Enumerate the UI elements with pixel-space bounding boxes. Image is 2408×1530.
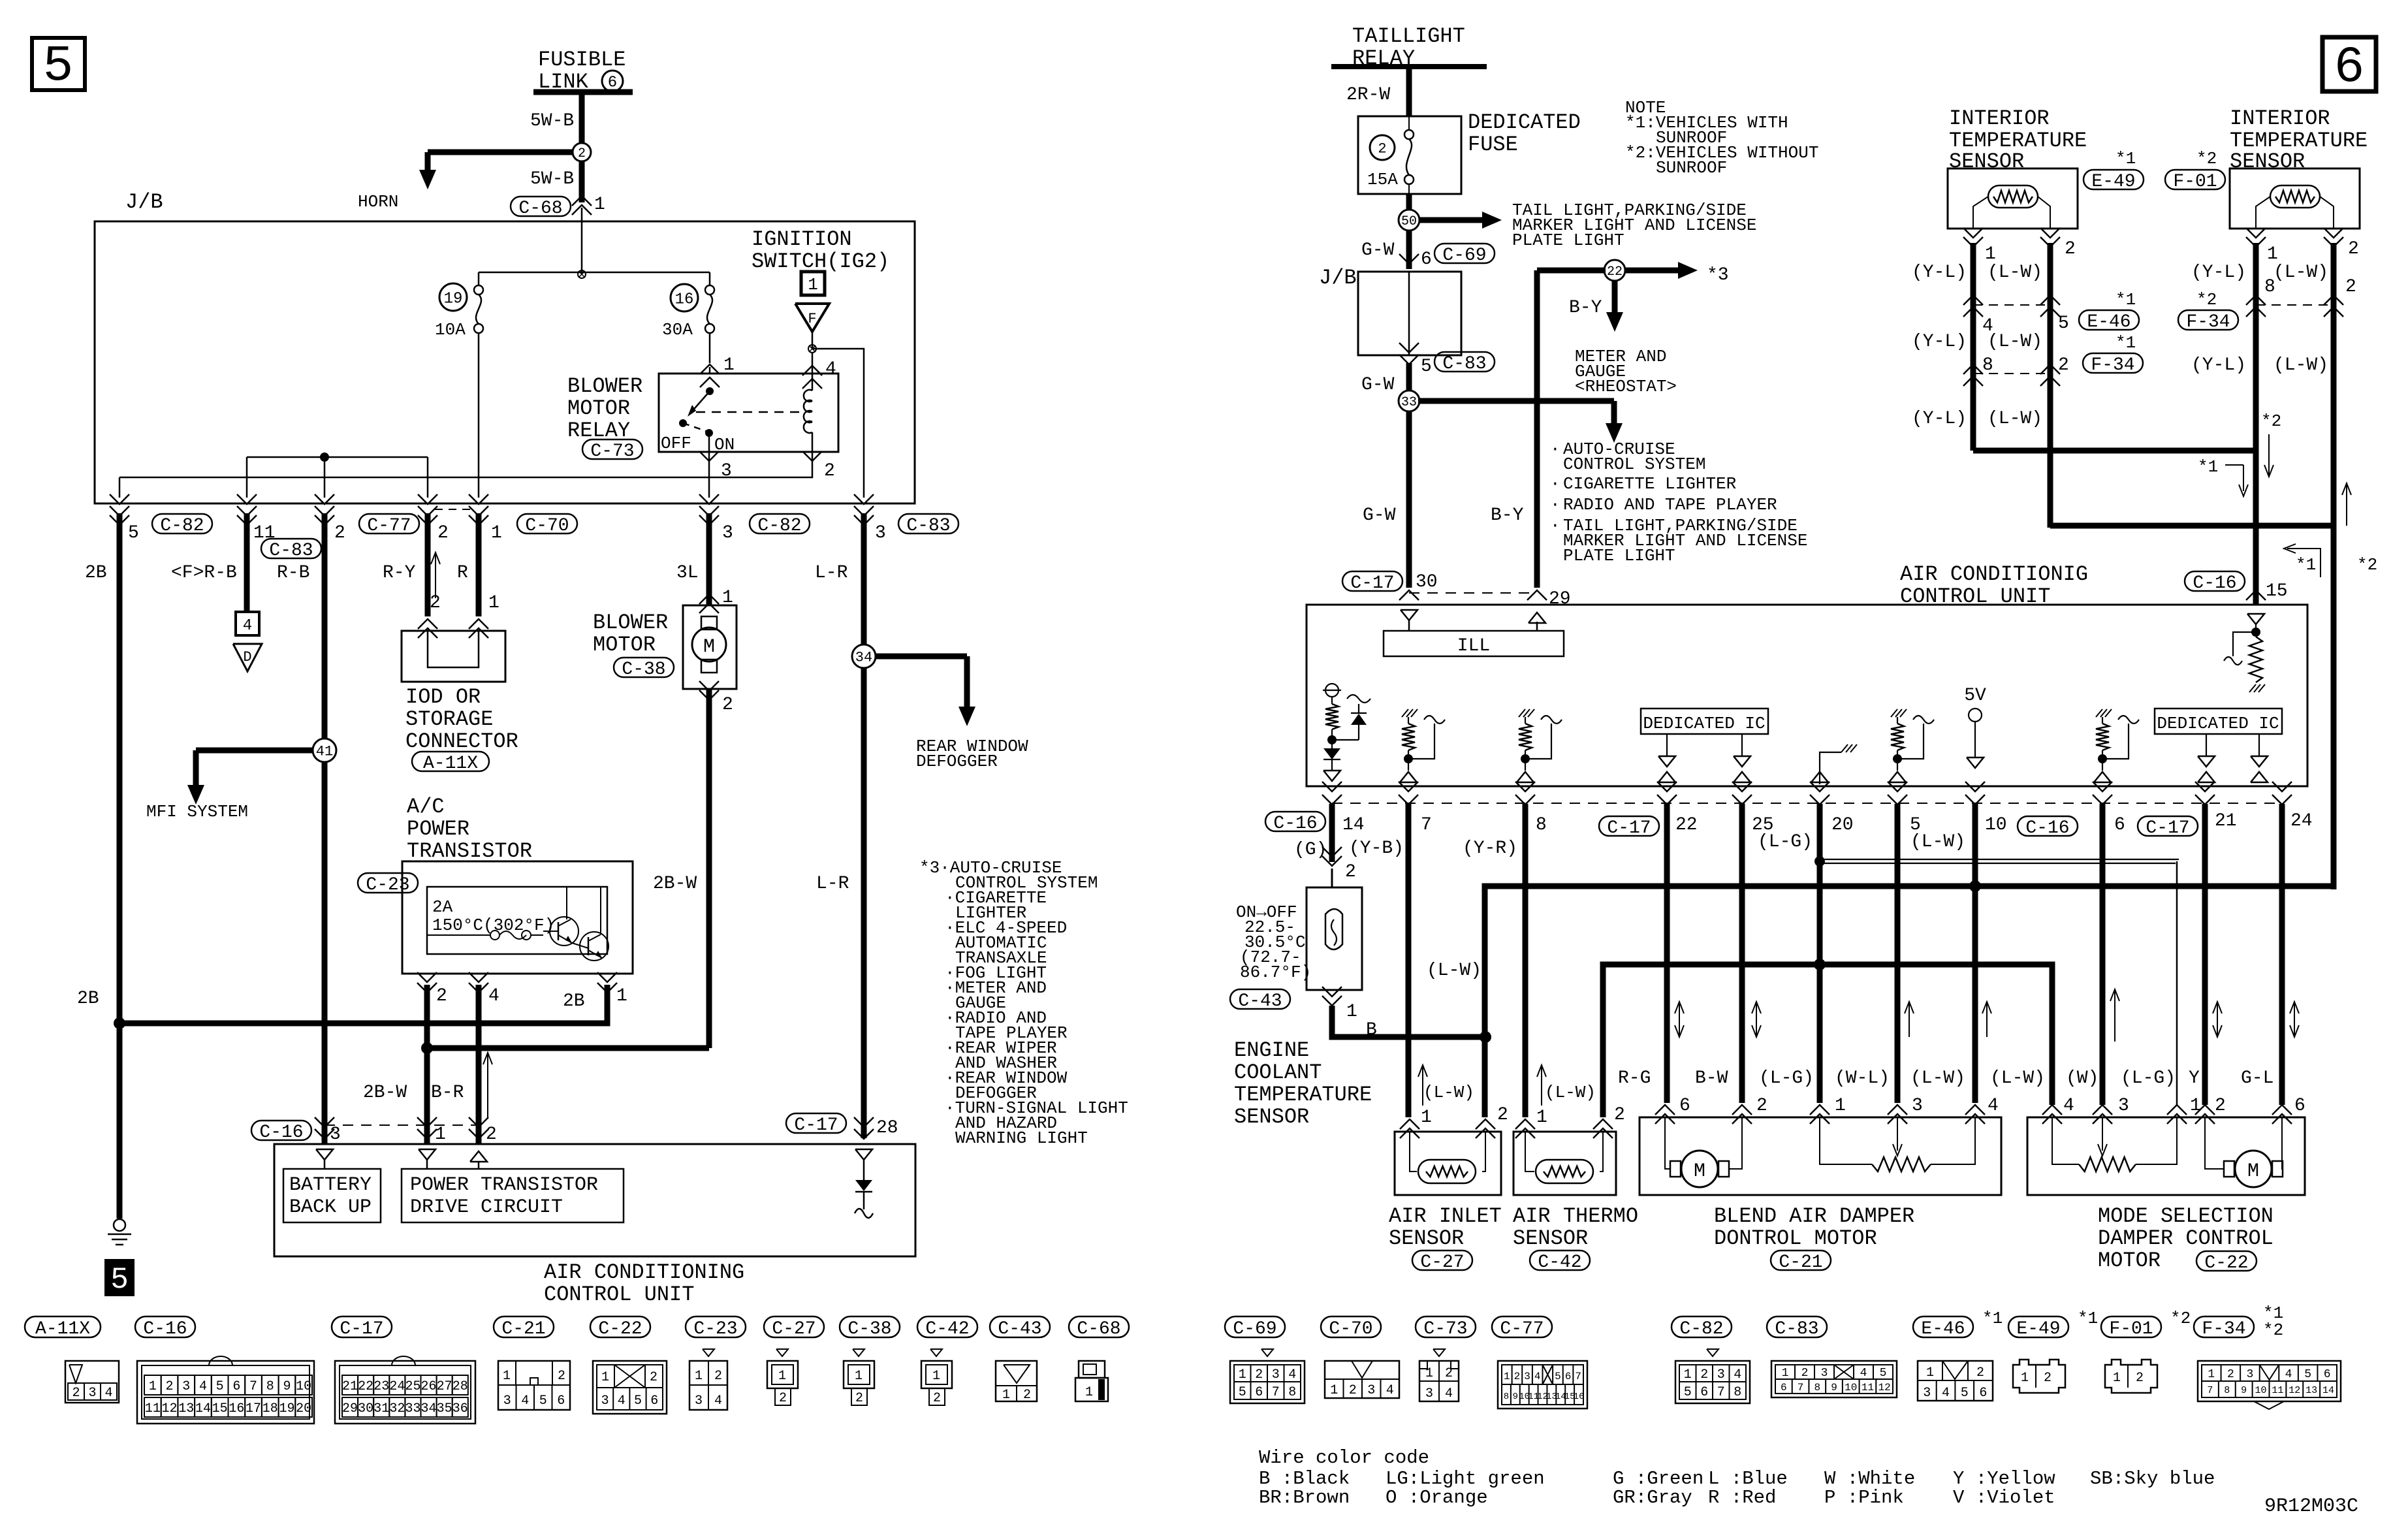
svg-text:MFI SYSTEM: MFI SYSTEM xyxy=(146,802,248,821)
svg-text:9: 9 xyxy=(1513,1392,1518,1402)
svg-text:4: 4 xyxy=(2063,1096,2074,1116)
svg-text:4: 4 xyxy=(1534,1371,1541,1382)
svg-text:P :Pink: P :Pink xyxy=(1824,1487,1904,1508)
svg-text:5: 5 xyxy=(43,38,74,95)
svg-text:36: 36 xyxy=(452,1401,468,1416)
svg-text:9: 9 xyxy=(2241,1385,2247,1396)
svg-text:IGNITION: IGNITION xyxy=(752,227,852,251)
svg-text:AIR THERMO: AIR THERMO xyxy=(1513,1204,1638,1228)
svg-text:2A: 2A xyxy=(432,897,453,917)
svg-text:CONTROL SYSTEM: CONTROL SYSTEM xyxy=(1563,454,1705,474)
svg-text:2: 2 xyxy=(1756,1096,1767,1116)
svg-text:B-W: B-W xyxy=(1695,1068,1728,1089)
svg-text:(Y-L): (Y-L) xyxy=(2191,263,2246,283)
svg-text:C-43: C-43 xyxy=(1238,991,1282,1012)
svg-text:C-70: C-70 xyxy=(525,516,569,536)
svg-text:R-B: R-B xyxy=(277,563,309,583)
svg-text:E-46: E-46 xyxy=(2087,312,2131,332)
svg-text:4: 4 xyxy=(714,1394,722,1409)
svg-text:R: R xyxy=(457,563,468,583)
svg-text:34: 34 xyxy=(855,650,872,666)
svg-text:2: 2 xyxy=(2065,239,2076,259)
svg-text:1: 1 xyxy=(616,986,627,1006)
svg-text:3: 3 xyxy=(2247,1368,2254,1381)
svg-text:C-82: C-82 xyxy=(757,516,801,536)
svg-text:<F>R-B: <F>R-B xyxy=(171,563,237,583)
svg-text:9R12M03C: 9R12M03C xyxy=(2264,1495,2358,1518)
svg-text:C-42: C-42 xyxy=(925,1319,969,1339)
svg-text:5: 5 xyxy=(110,1263,129,1297)
svg-text:15: 15 xyxy=(2266,581,2288,601)
svg-text:8: 8 xyxy=(1814,1382,1820,1394)
svg-text:1: 1 xyxy=(1782,1367,1789,1380)
svg-text:1: 1 xyxy=(1926,1365,1934,1380)
svg-text:23: 23 xyxy=(373,1379,389,1394)
svg-text:C-73: C-73 xyxy=(1423,1319,1467,1339)
svg-text:4: 4 xyxy=(1942,1386,1950,1401)
svg-text:2: 2 xyxy=(779,1391,787,1406)
svg-text:1: 1 xyxy=(1085,1385,1093,1400)
svg-text:16: 16 xyxy=(1574,1392,1585,1402)
svg-text:1: 1 xyxy=(2113,1371,2121,1386)
svg-text:2: 2 xyxy=(1976,1365,1984,1380)
svg-text:34: 34 xyxy=(421,1401,437,1416)
svg-text:L-R: L-R xyxy=(816,874,849,894)
svg-text:2: 2 xyxy=(2058,355,2069,375)
svg-text:AIR CONDITIONING: AIR CONDITIONING xyxy=(544,1260,744,1284)
svg-text:C-38: C-38 xyxy=(848,1319,891,1339)
svg-text:J/B: J/B xyxy=(125,190,163,214)
svg-text:22: 22 xyxy=(1675,815,1698,835)
svg-text:<RHEOSTAT>: <RHEOSTAT> xyxy=(1575,377,1677,396)
svg-text:13: 13 xyxy=(178,1401,194,1416)
svg-text:E-49: E-49 xyxy=(2091,172,2135,192)
svg-text:SUNROOF: SUNROOF xyxy=(1656,158,1727,178)
svg-text:G-W: G-W xyxy=(1363,505,1396,526)
svg-text:BACK UP: BACK UP xyxy=(289,1196,372,1219)
svg-text:C-21: C-21 xyxy=(501,1319,545,1339)
svg-text:1: 1 xyxy=(491,523,502,543)
svg-text:A-11X: A-11X xyxy=(423,754,478,774)
svg-text:9: 9 xyxy=(283,1379,291,1394)
svg-text:7: 7 xyxy=(2207,1385,2213,1396)
svg-text:22: 22 xyxy=(358,1379,373,1394)
svg-text:*3: *3 xyxy=(1707,265,1729,285)
svg-text:3: 3 xyxy=(88,1386,96,1401)
svg-text:3: 3 xyxy=(1717,1367,1725,1382)
svg-text:C-17: C-17 xyxy=(1350,573,1394,594)
svg-text:STORAGE: STORAGE xyxy=(405,707,493,731)
svg-text:G-W: G-W xyxy=(1361,240,1395,261)
svg-text:8: 8 xyxy=(266,1379,274,1394)
svg-text:2: 2 xyxy=(430,593,441,613)
svg-text:1: 1 xyxy=(778,1369,786,1384)
svg-text:1: 1 xyxy=(149,1379,157,1394)
svg-text:C-69: C-69 xyxy=(1442,246,1486,266)
svg-text:12: 12 xyxy=(162,1401,178,1416)
svg-text:C-16: C-16 xyxy=(2025,818,2069,838)
svg-text:C-82: C-82 xyxy=(160,516,204,536)
svg-text:PLATE LIGHT: PLATE LIGHT xyxy=(1512,231,1624,250)
svg-text:4: 4 xyxy=(1860,1367,1867,1380)
svg-text:2: 2 xyxy=(1023,1388,1031,1403)
svg-text:FUSIBLE: FUSIBLE xyxy=(538,48,626,72)
svg-text:2: 2 xyxy=(1801,1367,1809,1380)
svg-text:2: 2 xyxy=(2345,277,2356,297)
svg-text:*1: *1 xyxy=(2078,1309,2098,1328)
svg-text:(L-G): (L-G) xyxy=(1758,832,1813,852)
svg-text:6: 6 xyxy=(1565,1371,1572,1382)
svg-text:5: 5 xyxy=(1421,357,1432,377)
svg-text:8: 8 xyxy=(1734,1385,1741,1400)
svg-text:4: 4 xyxy=(1288,1367,1296,1382)
svg-text:2: 2 xyxy=(1614,1105,1625,1125)
svg-text:IOD OR: IOD OR xyxy=(405,685,481,709)
svg-text:7: 7 xyxy=(1272,1385,1280,1400)
svg-text:21: 21 xyxy=(2215,811,2237,831)
svg-text:6: 6 xyxy=(2294,1096,2305,1116)
svg-text:·: · xyxy=(1550,516,1560,535)
svg-text:22: 22 xyxy=(1607,264,1623,279)
svg-text:4: 4 xyxy=(1445,1386,1453,1401)
svg-text:F-01: F-01 xyxy=(2109,1319,2153,1339)
svg-text:5: 5 xyxy=(1880,1367,1887,1380)
svg-text:1: 1 xyxy=(808,275,818,295)
svg-text:3: 3 xyxy=(330,1124,341,1145)
svg-text:1: 1 xyxy=(1504,1371,1510,1382)
svg-text:2: 2 xyxy=(2136,1371,2144,1386)
svg-text:3: 3 xyxy=(1923,1386,1931,1401)
svg-text:19: 19 xyxy=(444,290,463,308)
svg-text:30A: 30A xyxy=(662,320,693,340)
svg-text:CIGARETTE LIGHTER: CIGARETTE LIGHTER xyxy=(1563,474,1736,494)
svg-text:DRIVE CIRCUIT: DRIVE CIRCUIT xyxy=(410,1196,563,1219)
svg-text:6: 6 xyxy=(1700,1385,1708,1400)
svg-text:1: 1 xyxy=(601,1370,609,1385)
svg-text:BLOWER: BLOWER xyxy=(593,611,668,635)
svg-text:(W-L): (W-L) xyxy=(1835,1068,1890,1089)
svg-text:(Y-L): (Y-L) xyxy=(2191,355,2246,375)
svg-text:6: 6 xyxy=(2324,1368,2331,1381)
svg-text:*2: *2 xyxy=(2196,290,2217,310)
svg-text:7: 7 xyxy=(1798,1382,1804,1394)
svg-text:6: 6 xyxy=(232,1379,240,1394)
svg-text:13: 13 xyxy=(2305,1385,2317,1396)
svg-text:4: 4 xyxy=(1386,1383,1394,1398)
svg-text:2: 2 xyxy=(436,986,447,1006)
svg-text:1: 1 xyxy=(695,1369,703,1384)
svg-text:33: 33 xyxy=(1401,395,1417,410)
svg-text:3: 3 xyxy=(503,1394,511,1409)
svg-text:4: 4 xyxy=(199,1379,207,1394)
svg-text:B-R: B-R xyxy=(431,1083,464,1103)
svg-text:33: 33 xyxy=(405,1401,420,1416)
svg-text:2: 2 xyxy=(650,1370,657,1385)
svg-text:TEMPERATURE: TEMPERATURE xyxy=(1234,1083,1372,1107)
svg-text:(Y-L): (Y-L) xyxy=(1912,263,1967,283)
svg-text:C-77: C-77 xyxy=(367,516,411,536)
svg-text:2: 2 xyxy=(72,1386,80,1401)
svg-text:E-49: E-49 xyxy=(2016,1319,2060,1339)
svg-text:8: 8 xyxy=(2264,277,2275,297)
svg-text:B-Y: B-Y xyxy=(1569,298,1602,318)
svg-text:C-68: C-68 xyxy=(1077,1319,1120,1339)
svg-text:C-82: C-82 xyxy=(1679,1319,1723,1339)
svg-text:C-27: C-27 xyxy=(1420,1252,1464,1273)
svg-text:L-R: L-R xyxy=(815,563,848,583)
svg-text:C-17: C-17 xyxy=(340,1319,383,1339)
svg-text:2: 2 xyxy=(1378,141,1386,157)
svg-text:C-17: C-17 xyxy=(2146,818,2189,838)
svg-text:3: 3 xyxy=(182,1379,190,1394)
svg-text:8: 8 xyxy=(1982,355,1993,375)
svg-text:2B: 2B xyxy=(77,989,99,1009)
svg-text:7: 7 xyxy=(1575,1371,1581,1382)
svg-text:28: 28 xyxy=(876,1118,898,1138)
svg-text:(L-G): (L-G) xyxy=(1759,1068,1814,1089)
svg-text:1: 1 xyxy=(723,355,735,375)
svg-text:SWITCH(IG2): SWITCH(IG2) xyxy=(752,249,889,274)
svg-text:5V: 5V xyxy=(1964,686,1986,706)
svg-text:1: 1 xyxy=(1985,244,1996,264)
svg-text:6: 6 xyxy=(557,1394,565,1409)
svg-text:2B: 2B xyxy=(563,991,585,1012)
svg-text:5: 5 xyxy=(2058,313,2069,334)
svg-text:3: 3 xyxy=(2118,1096,2129,1116)
svg-text:C-16: C-16 xyxy=(1273,814,1317,834)
svg-text:1: 1 xyxy=(594,195,605,215)
svg-text:1: 1 xyxy=(1835,1096,1846,1116)
svg-text:ILL: ILL xyxy=(1457,636,1490,656)
svg-text:2: 2 xyxy=(2227,1368,2234,1381)
svg-text:2: 2 xyxy=(1255,1367,1263,1382)
svg-text:·: · xyxy=(1550,439,1560,459)
svg-text:4: 4 xyxy=(618,1394,626,1409)
svg-text:G-W: G-W xyxy=(1361,375,1395,395)
svg-text:5: 5 xyxy=(1239,1385,1246,1400)
svg-text:R-Y: R-Y xyxy=(383,563,416,583)
svg-text:C-38: C-38 xyxy=(622,660,665,680)
svg-text:1: 1 xyxy=(1239,1367,1246,1382)
svg-text:SENSOR: SENSOR xyxy=(1389,1226,1464,1251)
svg-text:Wire color code: Wire color code xyxy=(1259,1447,1429,1469)
svg-text:5W-B: 5W-B xyxy=(530,169,574,189)
svg-text:30: 30 xyxy=(1416,572,1438,592)
svg-text:B-Y: B-Y xyxy=(1491,505,1524,526)
svg-text:C-83: C-83 xyxy=(1442,354,1486,374)
svg-text:C-83: C-83 xyxy=(269,541,313,561)
svg-text:4: 4 xyxy=(1734,1367,1741,1382)
svg-text:R :Red: R :Red xyxy=(1708,1487,1776,1508)
svg-text:24: 24 xyxy=(389,1379,405,1394)
svg-text:C-23: C-23 xyxy=(366,875,409,895)
svg-text:2: 2 xyxy=(1700,1367,1708,1382)
svg-text:C-17: C-17 xyxy=(1607,818,1651,838)
svg-text:7: 7 xyxy=(1717,1385,1725,1400)
svg-text:SENSOR: SENSOR xyxy=(1234,1105,1309,1129)
svg-text:2: 2 xyxy=(2044,1371,2052,1386)
svg-text:DONTROL MOTOR: DONTROL MOTOR xyxy=(1714,1226,1877,1251)
svg-text:25: 25 xyxy=(405,1379,420,1394)
svg-text:1: 1 xyxy=(488,593,499,613)
svg-text:21: 21 xyxy=(342,1379,358,1394)
svg-text:*1: *1 xyxy=(2198,457,2218,477)
svg-text:*2: *2 xyxy=(2170,1309,2191,1328)
svg-text:1: 1 xyxy=(1330,1383,1338,1398)
svg-text:O :Orange: O :Orange xyxy=(1386,1487,1488,1508)
svg-text:C-22: C-22 xyxy=(2204,1253,2248,1273)
svg-text:3: 3 xyxy=(721,461,732,481)
svg-text:AIR CONDITIONIG: AIR CONDITIONIG xyxy=(1900,562,2088,586)
svg-text:7: 7 xyxy=(1421,815,1432,835)
svg-text:C-17: C-17 xyxy=(794,1115,838,1136)
svg-text:HORN: HORN xyxy=(358,192,398,212)
svg-text:FUSE: FUSE xyxy=(1468,133,1518,157)
svg-text:4: 4 xyxy=(104,1386,112,1401)
svg-text:SENSOR: SENSOR xyxy=(1513,1226,1588,1251)
svg-text:2: 2 xyxy=(824,461,835,481)
svg-text:·: · xyxy=(1550,474,1560,494)
svg-text:1: 1 xyxy=(932,1369,940,1384)
svg-text:2: 2 xyxy=(855,1391,863,1406)
svg-text:4: 4 xyxy=(521,1394,529,1409)
svg-text:DEDICATED: DEDICATED xyxy=(1468,110,1581,135)
svg-text:B: B xyxy=(1366,1020,1377,1040)
svg-text:10: 10 xyxy=(1845,1382,1857,1394)
svg-text:2: 2 xyxy=(486,1124,497,1145)
svg-text:6: 6 xyxy=(1255,1385,1263,1400)
svg-text:C-83: C-83 xyxy=(1775,1319,1818,1339)
svg-text:2: 2 xyxy=(558,1369,565,1384)
svg-text:2: 2 xyxy=(714,1369,722,1384)
svg-text:1: 1 xyxy=(1536,1108,1547,1128)
svg-text:3: 3 xyxy=(695,1394,703,1409)
svg-text:INTERIOR: INTERIOR xyxy=(2230,106,2330,131)
svg-text:C-73: C-73 xyxy=(590,441,634,462)
svg-text:3: 3 xyxy=(722,523,733,543)
svg-text:11: 11 xyxy=(145,1401,161,1416)
svg-text:5: 5 xyxy=(1684,1385,1692,1400)
svg-text:3: 3 xyxy=(1272,1367,1280,1382)
svg-text:18: 18 xyxy=(262,1401,278,1416)
svg-text:17: 17 xyxy=(246,1401,261,1416)
svg-text:(L-W): (L-W) xyxy=(1910,832,1965,852)
svg-text:3: 3 xyxy=(601,1394,609,1409)
svg-text:5: 5 xyxy=(1555,1371,1561,1382)
svg-text:*1: *1 xyxy=(1982,1309,2003,1328)
svg-text:2: 2 xyxy=(1497,1105,1508,1125)
svg-text:6: 6 xyxy=(2114,815,2125,835)
svg-text:5: 5 xyxy=(216,1379,224,1394)
svg-text:1: 1 xyxy=(1346,1002,1357,1022)
svg-text:C-16: C-16 xyxy=(143,1319,187,1339)
svg-text:4: 4 xyxy=(825,359,836,379)
svg-text:F-01: F-01 xyxy=(2173,172,2217,192)
svg-text:10: 10 xyxy=(296,1379,311,1394)
svg-text:5: 5 xyxy=(539,1394,547,1409)
svg-text:Y: Y xyxy=(2189,1068,2200,1089)
svg-text:R-G: R-G xyxy=(1618,1068,1651,1089)
svg-text:14: 14 xyxy=(2322,1385,2334,1396)
svg-text:G-L: G-L xyxy=(2241,1068,2273,1089)
svg-text:6: 6 xyxy=(1421,249,1432,270)
svg-text:3: 3 xyxy=(1367,1383,1375,1398)
svg-text:20: 20 xyxy=(296,1401,311,1416)
svg-text:DEDICATED IC: DEDICATED IC xyxy=(2157,714,2279,733)
svg-text:SENSOR: SENSOR xyxy=(1949,150,2024,174)
svg-text:BLOWER: BLOWER xyxy=(567,374,642,398)
svg-text:10A: 10A xyxy=(435,320,466,340)
svg-text:16: 16 xyxy=(229,1401,244,1416)
svg-text:J/B: J/B xyxy=(1319,266,1357,290)
svg-text:*2: *2 xyxy=(2196,149,2217,168)
svg-text:20: 20 xyxy=(1831,815,1854,835)
svg-text:5: 5 xyxy=(634,1394,642,1409)
svg-text:2B-W: 2B-W xyxy=(363,1083,407,1103)
svg-text:2: 2 xyxy=(722,695,733,715)
svg-text:6: 6 xyxy=(1781,1382,1787,1394)
svg-text:(Y-L): (Y-L) xyxy=(1912,409,1967,429)
svg-text:2: 2 xyxy=(2348,239,2359,259)
svg-text:2: 2 xyxy=(1445,1366,1453,1381)
svg-text:12: 12 xyxy=(2289,1385,2300,1396)
svg-text:1: 1 xyxy=(855,1369,863,1384)
svg-text:ENGINE: ENGINE xyxy=(1234,1038,1309,1062)
svg-text:2: 2 xyxy=(578,146,586,161)
svg-text:4: 4 xyxy=(1988,1096,1999,1116)
svg-text:*1: *1 xyxy=(2115,290,2136,310)
svg-text:86.7°F): 86.7°F) xyxy=(1240,963,1311,982)
svg-text:1: 1 xyxy=(1684,1367,1692,1382)
svg-text:(L-W): (L-W) xyxy=(2273,355,2328,375)
svg-text:*2: *2 xyxy=(2261,411,2281,431)
svg-text:(Y-R): (Y-R) xyxy=(1463,838,1517,859)
svg-text:2B: 2B xyxy=(85,563,107,583)
svg-text:MOTOR: MOTOR xyxy=(593,633,656,657)
svg-text:12: 12 xyxy=(1878,1382,1891,1394)
svg-text:2: 2 xyxy=(933,1391,941,1406)
svg-text:M: M xyxy=(703,636,715,658)
svg-text:*1: *1 xyxy=(2115,149,2136,168)
svg-text:BR:Brown: BR:Brown xyxy=(1259,1487,1350,1508)
svg-text:(L-W): (L-W) xyxy=(1910,1068,1965,1089)
svg-text:3L: 3L xyxy=(676,563,699,583)
svg-text:26: 26 xyxy=(421,1379,437,1394)
svg-text:8: 8 xyxy=(2224,1385,2230,1396)
svg-text:RADIO AND TAPE PLAYER: RADIO AND TAPE PLAYER xyxy=(1563,495,1777,515)
svg-text:(L-W): (L-W) xyxy=(1988,409,2042,429)
svg-text:8: 8 xyxy=(1536,815,1547,835)
svg-text:C-16: C-16 xyxy=(259,1123,303,1143)
svg-text:2R-W: 2R-W xyxy=(1346,85,1390,105)
svg-text:150°C(302°F): 150°C(302°F) xyxy=(432,916,554,935)
svg-text:19: 19 xyxy=(279,1401,294,1416)
svg-text:BLEND AIR DAMPER: BLEND AIR DAMPER xyxy=(1714,1204,1914,1228)
svg-text:C-77: C-77 xyxy=(1500,1319,1544,1339)
svg-text:E-46: E-46 xyxy=(1921,1319,1965,1339)
svg-text:27: 27 xyxy=(437,1379,452,1394)
svg-text:6: 6 xyxy=(650,1394,658,1409)
svg-text:*1: *1 xyxy=(2296,555,2316,575)
svg-text:1: 1 xyxy=(1425,1366,1433,1381)
svg-text:C-27: C-27 xyxy=(772,1319,816,1339)
svg-text:3: 3 xyxy=(875,523,886,543)
svg-text:6: 6 xyxy=(2334,39,2365,97)
svg-text:8: 8 xyxy=(1504,1392,1509,1402)
svg-text:8: 8 xyxy=(1288,1385,1296,1400)
svg-text:1: 1 xyxy=(1421,1108,1432,1128)
svg-text:CONNECTOR: CONNECTOR xyxy=(405,729,518,754)
